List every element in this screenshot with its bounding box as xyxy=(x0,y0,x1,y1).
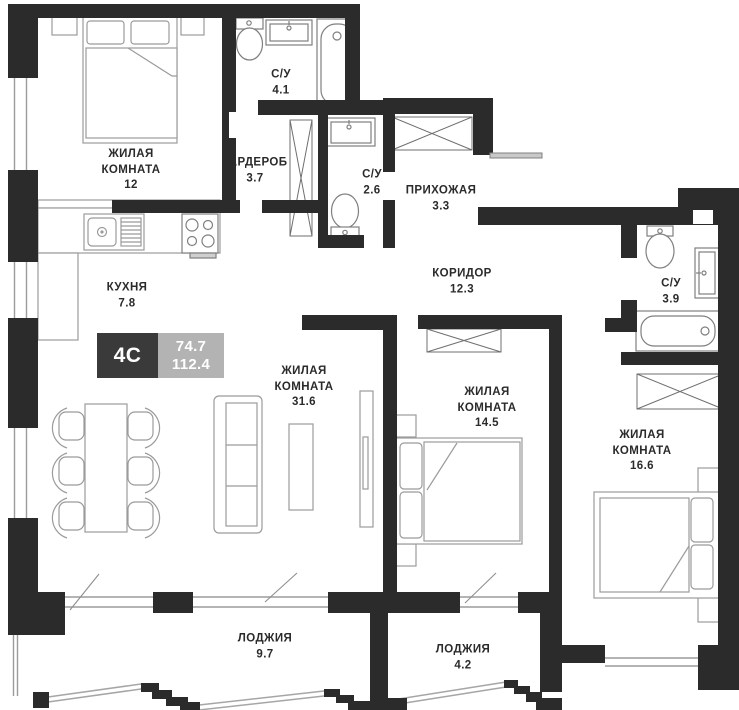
room-area: 3.9 xyxy=(661,292,681,308)
room-name: ГАРДЕРОБ xyxy=(223,156,288,172)
room-name: КУХНЯ xyxy=(107,281,148,297)
room-name: С/У xyxy=(661,277,681,293)
sink-bath39-icon xyxy=(695,248,719,298)
room-area: 12 xyxy=(102,178,161,194)
sofa-icon xyxy=(214,396,262,533)
window-left-kitchen-icon xyxy=(15,262,27,318)
loggia-glazing xyxy=(48,680,562,710)
label-bath-3-9: С/У 3.9 xyxy=(661,277,681,308)
label-corridor: КОРИДОР 12.3 xyxy=(432,267,492,298)
wardrobe-x-room166-icon xyxy=(637,374,723,409)
tv-stand-icon xyxy=(360,391,373,527)
apartment-area-badge: 74.7 112.4 xyxy=(158,333,224,378)
label-room-16-6: ЖИЛАЯ КОМНАТА 16.6 xyxy=(613,428,672,475)
label-room-12: ЖИЛАЯ КОМНАТА 12 xyxy=(102,147,161,194)
entry-door-icon xyxy=(490,153,542,158)
window-left-bedroom-icon xyxy=(15,78,27,170)
living-area-value: 74.7 xyxy=(176,338,206,356)
wardrobe-x-room145-icon xyxy=(427,329,501,352)
bed-room166-icon xyxy=(594,468,722,622)
room-name: С/У xyxy=(271,68,291,84)
label-kitchen: КУХНЯ 7.8 xyxy=(107,281,148,312)
label-wardrobe: ГАРДЕРОБ 3.7 xyxy=(223,156,288,187)
room-name: КОМНАТА xyxy=(275,379,334,395)
bed-room12-icon xyxy=(52,17,204,143)
wardrobe-x-garderob-icon xyxy=(290,120,312,236)
window-left-living-icon xyxy=(15,428,27,518)
room-name: КОМНАТА xyxy=(613,443,672,459)
room-name: КОМНАТА xyxy=(102,162,161,178)
label-loggia-4-2: ЛОДЖИЯ 4.2 xyxy=(436,643,490,674)
label-bath-4-1: С/У 4.1 xyxy=(271,68,291,99)
window-room166-icon xyxy=(605,658,698,666)
dining-table-icon xyxy=(85,404,127,532)
sink-bath26-icon xyxy=(327,118,375,146)
total-area-value: 112.4 xyxy=(172,356,210,374)
wall-niche xyxy=(693,210,713,224)
room-name: ЛОДЖИЯ xyxy=(238,632,292,648)
floor-plan: ЖИЛАЯ КОМНАТА 12 ГАРДЕРОБ 3.7 С/У 4.1 С/… xyxy=(0,0,739,710)
label-loggia-9-7: ЛОДЖИЯ 9.7 xyxy=(238,632,292,663)
room-name: ЖИЛАЯ xyxy=(102,147,161,163)
sink-bath41-icon xyxy=(266,20,312,45)
apartment-type-badge: 4С xyxy=(97,333,158,378)
room-area: 9.7 xyxy=(238,647,292,663)
label-hallway: ПРИХОЖАЯ 3.3 xyxy=(406,184,477,215)
label-room-31-6: ЖИЛАЯ КОМНАТА 31.6 xyxy=(275,364,334,411)
room-name: ЖИЛАЯ xyxy=(613,428,672,444)
room-name: КОРИДОР xyxy=(432,267,492,283)
toilet-bath41-icon xyxy=(236,18,263,60)
kitchen-sink-icon xyxy=(84,214,144,250)
window-room145-icon xyxy=(460,597,518,607)
toilet-bath39-icon xyxy=(646,226,674,268)
room-area: 2.6 xyxy=(362,183,382,199)
room-name: С/У xyxy=(362,168,382,184)
stove-icon xyxy=(182,214,218,258)
window-living-b-icon xyxy=(193,597,328,607)
room-area: 16.6 xyxy=(613,459,672,475)
room-name: ПРИХОЖАЯ xyxy=(406,184,477,200)
room-area: 3.7 xyxy=(223,171,288,187)
room-name: КОМНАТА xyxy=(458,400,517,416)
room-area: 7.8 xyxy=(107,296,148,312)
apartment-badge: 4С 74.7 112.4 xyxy=(97,333,224,378)
room-area: 14.5 xyxy=(458,416,517,432)
room-name: ЖИЛАЯ xyxy=(458,385,517,401)
room-area: 3.3 xyxy=(406,199,477,215)
loggia-left-wall-line-icon xyxy=(14,635,18,696)
wardrobe-x-hallway-icon xyxy=(392,117,472,150)
room-name: ЖИЛАЯ xyxy=(275,364,334,380)
room-area: 12.3 xyxy=(432,282,492,298)
room-name: ЛОДЖИЯ xyxy=(436,643,490,659)
room-area: 31.6 xyxy=(275,395,334,411)
room-area: 4.2 xyxy=(436,658,490,674)
window-living-a-icon xyxy=(65,597,153,607)
label-bath-2-6: С/У 2.6 xyxy=(362,168,382,199)
label-room-14-5: ЖИЛАЯ КОМНАТА 14.5 xyxy=(458,385,517,432)
room-area: 4.1 xyxy=(271,83,291,99)
bed-room145-icon xyxy=(395,415,522,566)
bathtub-bath39-icon xyxy=(636,311,720,351)
glazing-steps xyxy=(141,680,562,710)
coffee-table-icon xyxy=(289,424,313,510)
toilet-bath26-icon xyxy=(331,194,359,238)
